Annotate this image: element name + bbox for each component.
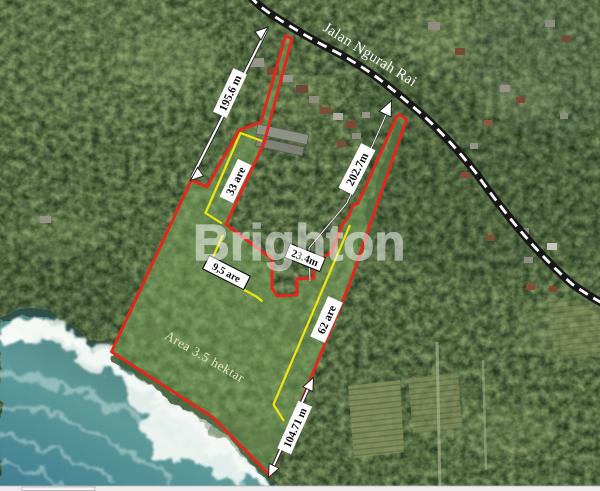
svg-text:Brighton: Brighton [193,214,405,271]
